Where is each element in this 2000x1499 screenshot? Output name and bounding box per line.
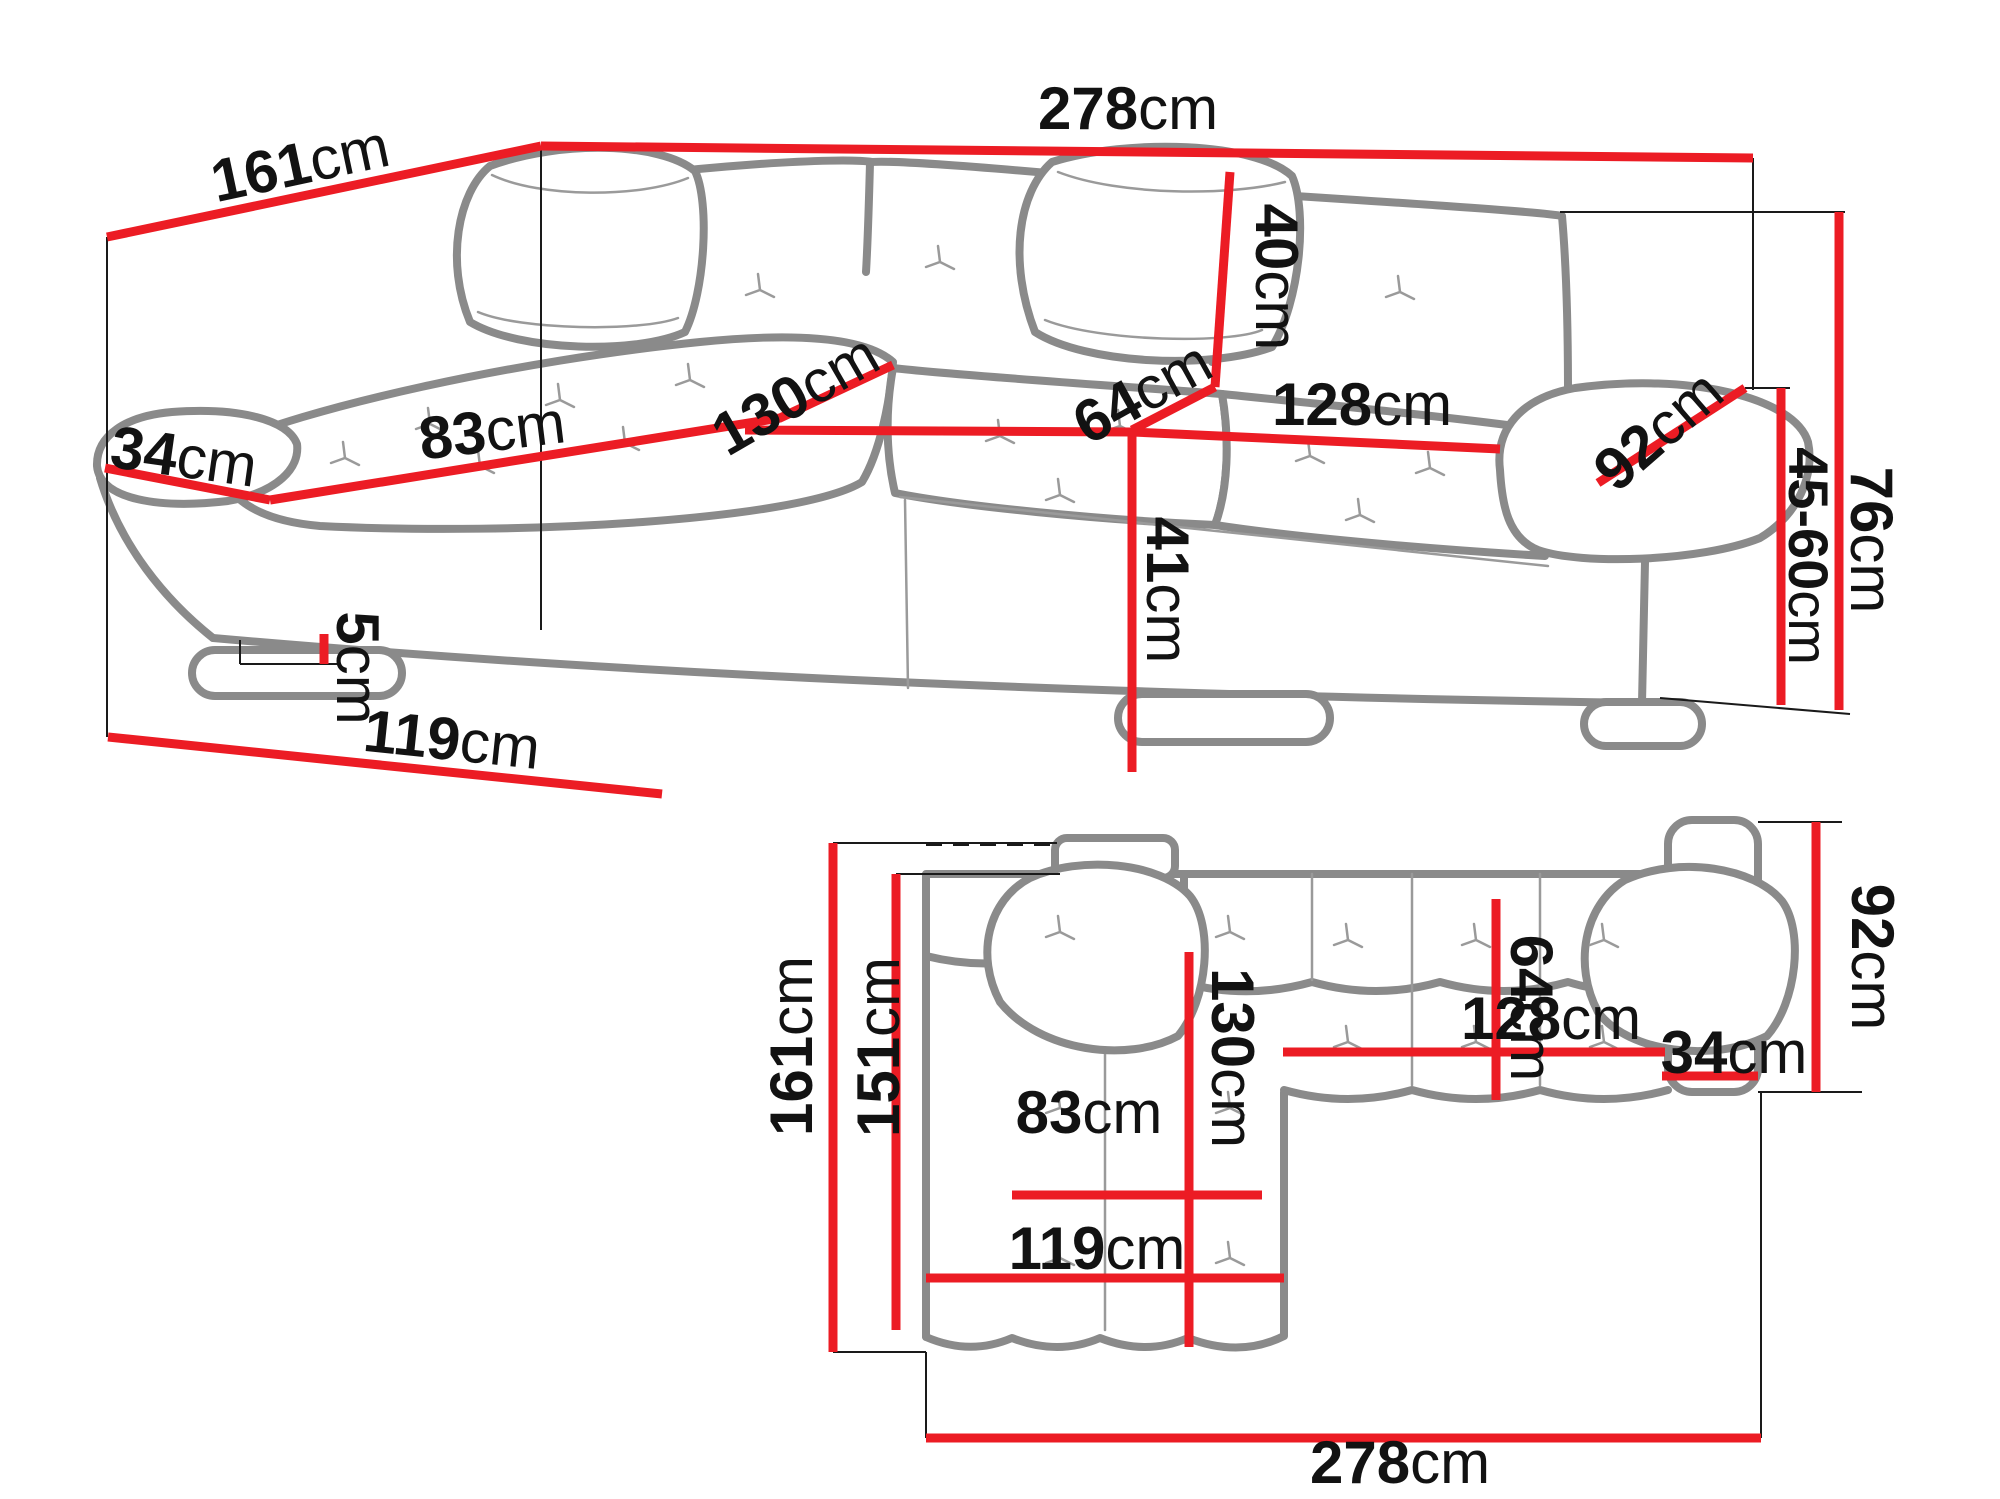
plan-bottom-left-tick <box>833 1352 926 1438</box>
label-278-perspective: 278cm <box>1038 75 1218 142</box>
label-41: 41cm <box>1135 517 1202 664</box>
backrest-seam-left <box>866 163 870 272</box>
extension-lines <box>107 146 1862 1438</box>
label-92-plan: 92cm <box>1840 884 1907 1031</box>
plan-pillow-left <box>987 865 1204 1051</box>
label-128-perspective: 128cm <box>1272 371 1452 438</box>
leg-right <box>1584 702 1702 746</box>
label-161-plan: 161cm <box>758 956 825 1136</box>
sofa-dimension-diagram: 161cm 278cm 40cm 64cm 128cm 92cm 76cm 45… <box>0 0 2000 1499</box>
base-right-edge <box>1642 562 1645 703</box>
diagram-canvas: 161cm 278cm 40cm 64cm 128cm 92cm 76cm 45… <box>0 0 2000 1499</box>
label-151-plan: 151cm <box>845 957 912 1137</box>
label-119-plan: 119cm <box>1009 1215 1186 1282</box>
label-83-plan: 83cm <box>1016 1079 1163 1146</box>
label-128-plan: 128cm <box>1461 985 1641 1052</box>
base-bottom-edge <box>213 638 1642 703</box>
label-76: 76cm <box>1839 467 1906 614</box>
label-130-plan: 130cm <box>1200 968 1267 1148</box>
leg-middle <box>1118 694 1330 742</box>
dimension-lines <box>105 146 1839 1438</box>
label-40: 40cm <box>1244 204 1311 351</box>
label-278-plan: 278cm <box>1310 1429 1490 1496</box>
dim-278-line-perspective <box>541 146 1753 158</box>
label-34-plan: 34cm <box>1661 1019 1808 1086</box>
label-45-60: 45-60cm <box>1778 447 1841 665</box>
